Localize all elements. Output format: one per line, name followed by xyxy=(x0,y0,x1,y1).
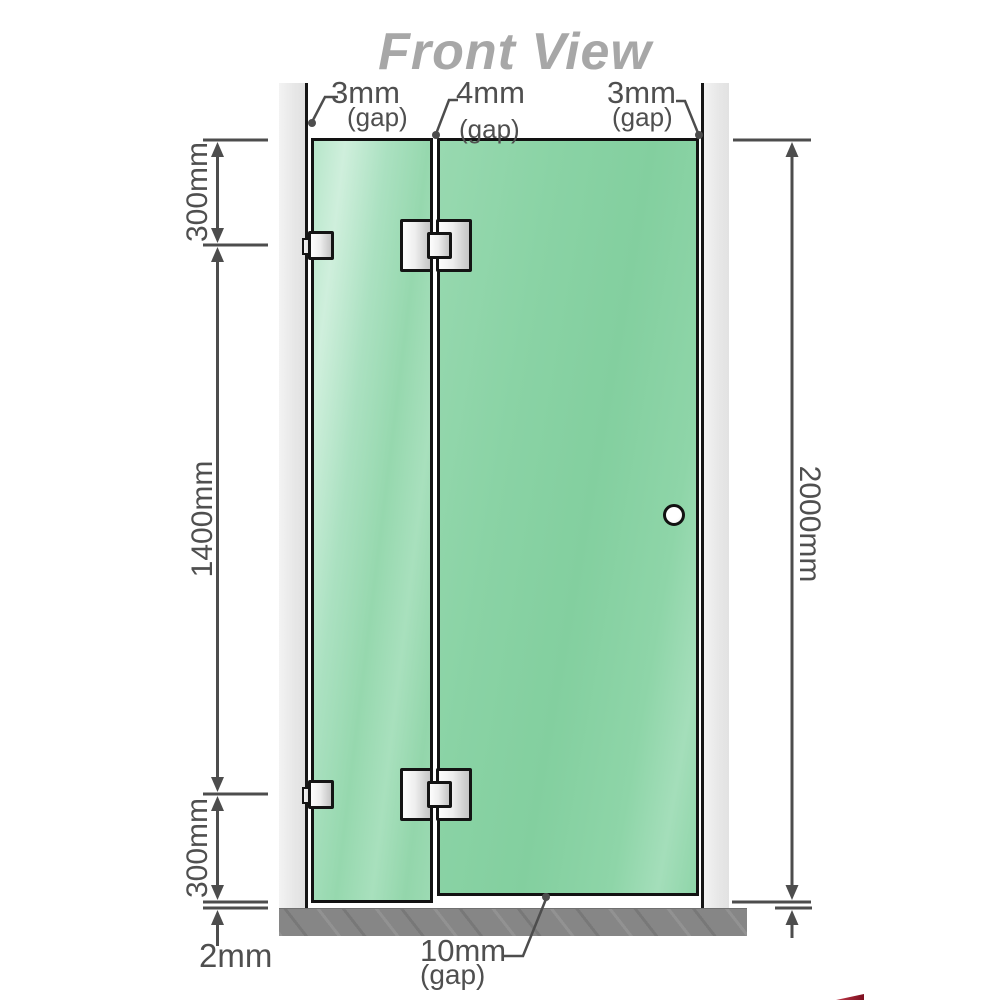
arrow-up-icon xyxy=(211,247,224,262)
dim-label-300mm-top: 300mm xyxy=(183,142,213,242)
dimensions-overlay xyxy=(0,0,1000,1000)
gap-label-bottom-unit: (gap) xyxy=(420,961,485,989)
leader-dots xyxy=(308,119,703,901)
dimension-ticks xyxy=(203,140,812,908)
arrow-up-icon xyxy=(786,910,799,925)
dim-label-2mm: 2mm xyxy=(199,939,272,972)
dimension-lines xyxy=(218,154,793,946)
leader-line xyxy=(676,101,698,133)
leader-dot xyxy=(542,893,550,901)
leader-dot xyxy=(695,131,703,139)
leader-dot xyxy=(308,119,316,127)
arrow-down-icon xyxy=(211,777,224,792)
leader-line xyxy=(504,899,546,956)
gap-label-top-right-unit: (gap) xyxy=(612,104,673,130)
dim-label-2000mm: 2000mm xyxy=(794,466,824,583)
arrow-down-icon xyxy=(786,885,799,900)
leader-dot xyxy=(432,131,440,139)
arrow-up-icon xyxy=(211,910,224,925)
arrow-up-icon xyxy=(786,142,799,157)
dim-label-1400mm: 1400mm xyxy=(188,461,218,578)
gap-label-top-middle-unit: (gap) xyxy=(459,116,520,142)
leader-line xyxy=(436,100,458,134)
gap-label-top-middle-value: 4mm xyxy=(456,77,525,108)
dim-label-300mm-bottom: 300mm xyxy=(183,798,213,898)
dimension-arrows xyxy=(211,142,799,925)
leader-lines xyxy=(312,97,698,956)
gap-label-top-left-unit: (gap) xyxy=(347,104,408,130)
diagram-canvas: Front View xyxy=(0,0,1000,1000)
